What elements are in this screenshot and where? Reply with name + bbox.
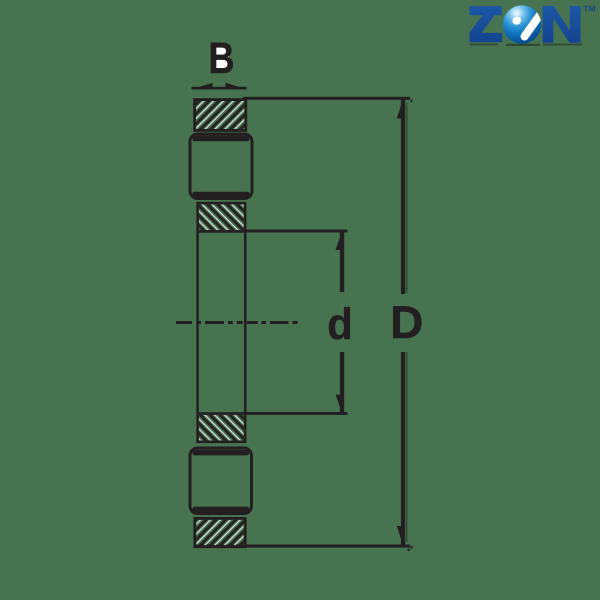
svg-text:TM: TM	[583, 4, 596, 14]
svg-text:D: D	[390, 296, 423, 348]
svg-text:d: d	[327, 300, 353, 349]
svg-text:B: B	[209, 34, 235, 83]
